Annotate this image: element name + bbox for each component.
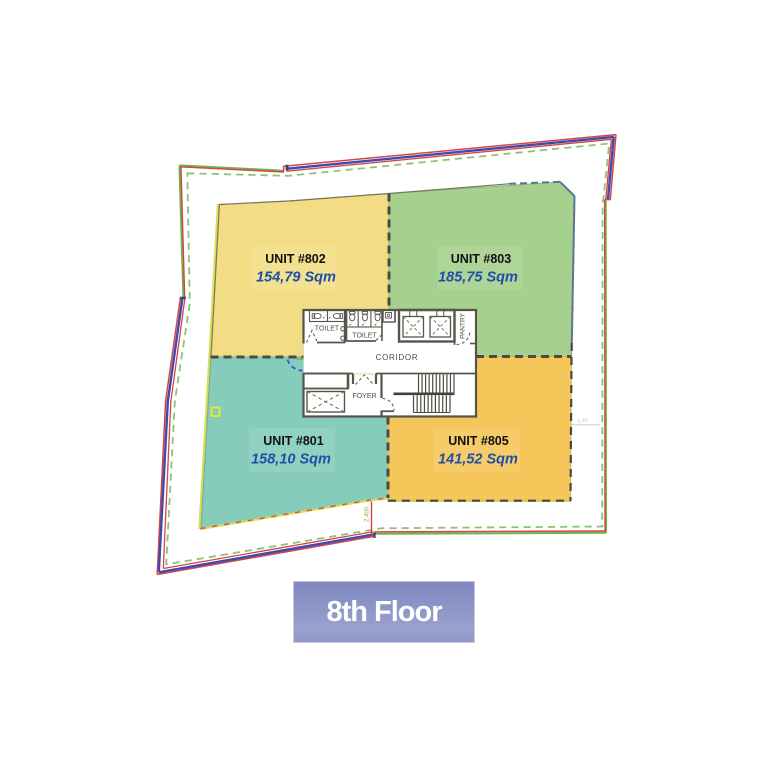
svg-text:8th Floor: 8th Floor — [326, 596, 442, 628]
svg-text:TOILET: TOILET — [352, 333, 377, 340]
svg-text:2.400: 2.400 — [365, 506, 371, 522]
svg-text:UNIT #803: UNIT #803 — [451, 252, 511, 266]
svg-text:TOILET: TOILET — [315, 326, 340, 333]
svg-text:UNIT #805: UNIT #805 — [448, 434, 508, 448]
svg-text:CORIDOR: CORIDOR — [376, 353, 419, 362]
svg-text:UNIT #802: UNIT #802 — [265, 252, 325, 266]
svg-text:185,75 Sqm: 185,75 Sqm — [438, 270, 518, 286]
svg-text:FOYER: FOYER — [352, 393, 376, 400]
svg-text:141,52 Sqm: 141,52 Sqm — [438, 452, 518, 468]
svg-text:154,79 Sqm: 154,79 Sqm — [256, 270, 336, 286]
svg-text:UNIT #801: UNIT #801 — [263, 434, 323, 448]
svg-text:158,10 Sqm: 158,10 Sqm — [251, 452, 331, 468]
svg-text:PANTRY: PANTRY — [460, 312, 467, 338]
